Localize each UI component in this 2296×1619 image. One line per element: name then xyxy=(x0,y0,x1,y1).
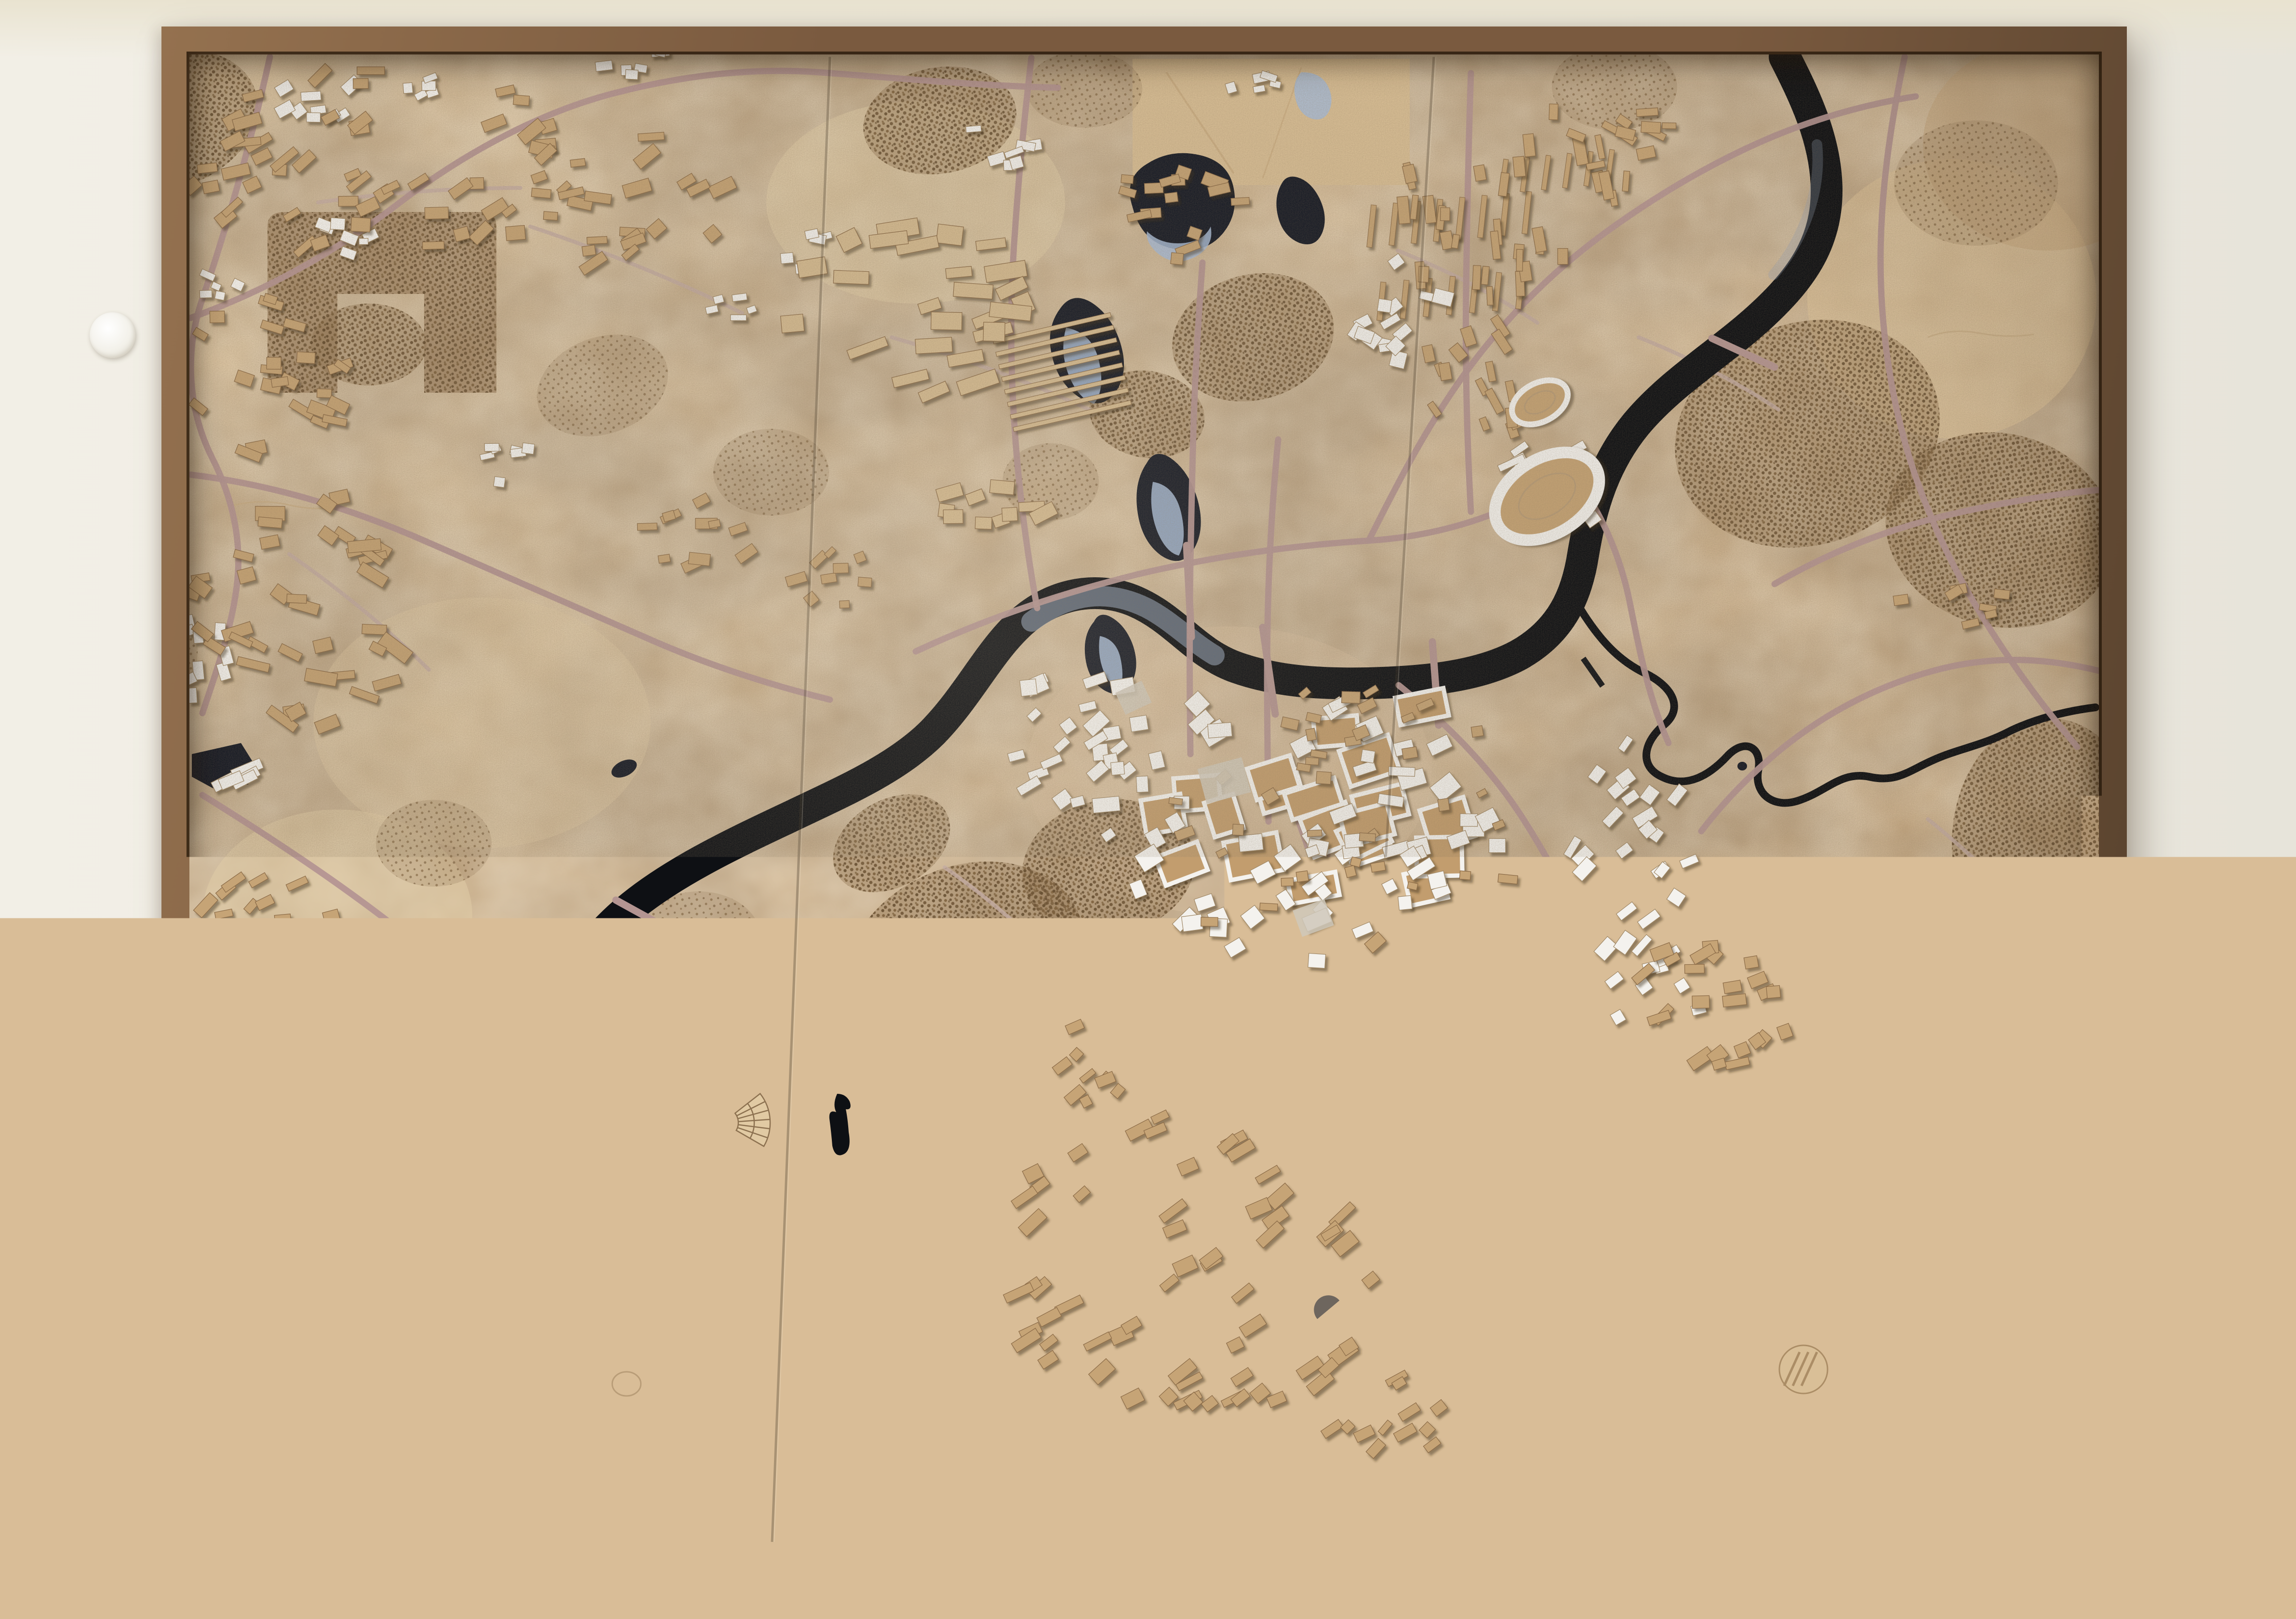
pallet-foot xyxy=(2049,1590,2103,1614)
map-vignette xyxy=(189,54,2099,1543)
photo-scene: Large three-panel wooden relief model of… xyxy=(0,0,2296,1619)
pallet-foot xyxy=(1600,1590,1654,1614)
map-frame xyxy=(161,27,2127,1571)
pallet-beam xyxy=(72,1570,2135,1591)
relief-map-svg xyxy=(189,54,2099,1543)
pallet-foot xyxy=(103,1590,157,1614)
round-wall-fixture xyxy=(90,312,135,358)
switch-rocker-icon[interactable] xyxy=(2,1006,19,1036)
light-switch[interactable] xyxy=(0,998,28,1045)
pallet-foot xyxy=(1085,1590,1139,1614)
pallet-foot xyxy=(641,1590,695,1614)
city-model-map xyxy=(189,54,2099,1543)
